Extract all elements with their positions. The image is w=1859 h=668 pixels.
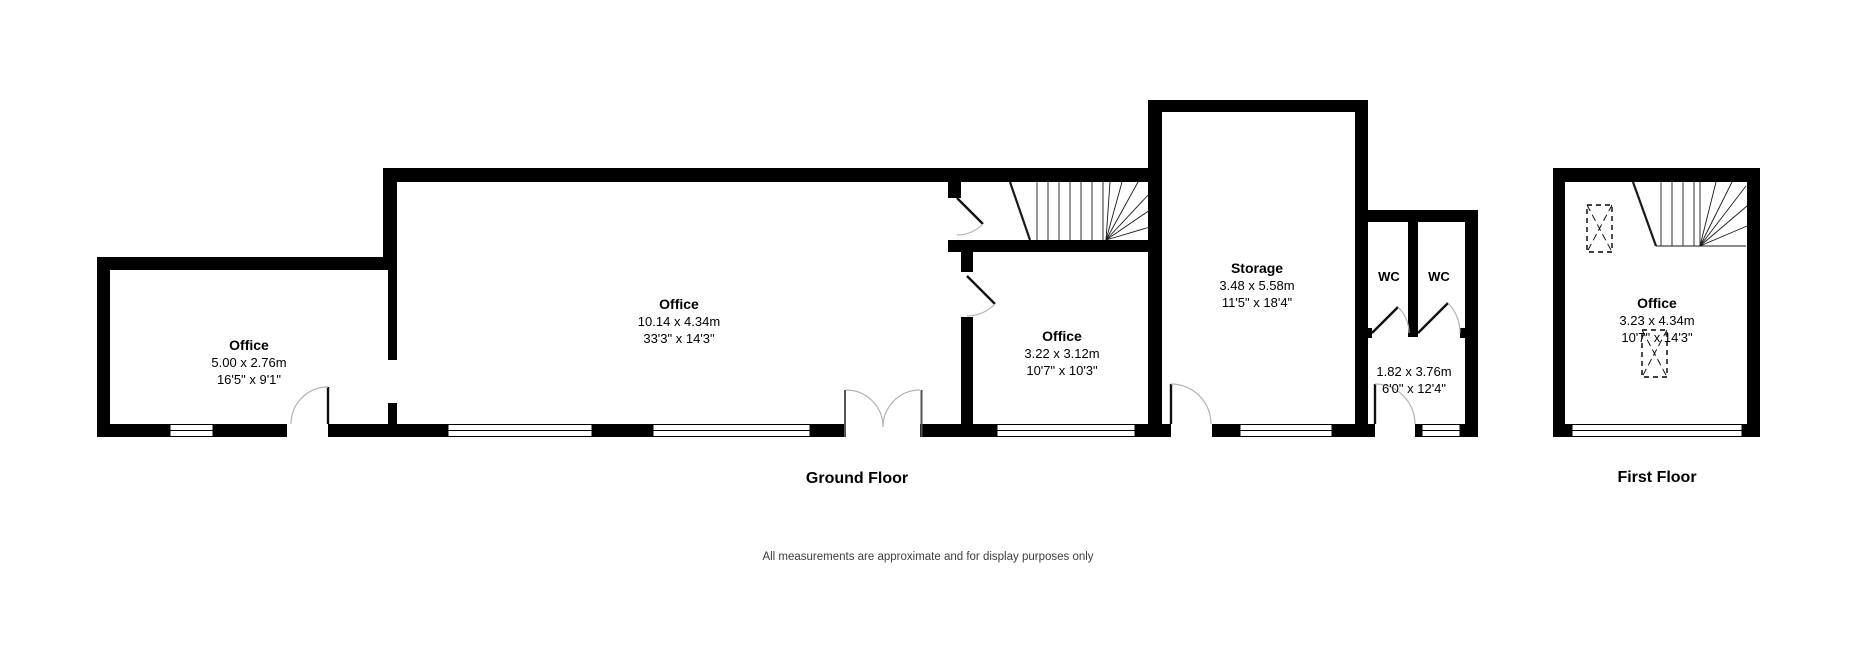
rooflight-symbols (1587, 205, 1667, 377)
wall (810, 424, 846, 437)
ground-floor-stairs (1010, 182, 1150, 240)
room-name: Office (1619, 295, 1694, 312)
room-dim-metric: 1.82 x 3.76m (1376, 363, 1451, 380)
room-label-storage: Storage 3.48 x 5.58m 11'5" x 18'4" (1219, 260, 1294, 311)
wall (1148, 100, 1162, 424)
door-leaf (967, 276, 995, 304)
wall (1332, 424, 1375, 437)
room-dim-imperial: 33'3" x 14'3" (638, 330, 720, 347)
room-name: Office (638, 296, 720, 313)
door-swing-arc (883, 390, 920, 427)
floorplan-drawing (0, 0, 1859, 668)
window-symbol (170, 425, 213, 437)
first-floor-window (1572, 425, 1742, 437)
wall (1747, 168, 1760, 437)
room-dim-imperial: 10'7" x 10'3" (1024, 362, 1099, 379)
window-symbol (1422, 425, 1460, 437)
first-floor-title: First Floor (1617, 469, 1696, 487)
stair-stringer (1633, 182, 1656, 246)
wall (961, 252, 973, 272)
wall (948, 182, 961, 198)
room-dim-metric: 3.23 x 4.34m (1619, 312, 1694, 329)
wall (1148, 100, 1368, 112)
wall (920, 424, 997, 437)
floorplan-page: Office 5.00 x 2.76m 16'5" x 9'1" Office … (0, 0, 1859, 668)
room-dim-imperial: 11'5" x 18'4" (1219, 294, 1294, 311)
wall (97, 424, 170, 437)
wall (961, 317, 973, 424)
stair-winders (1106, 182, 1150, 240)
room-name: Office (1024, 328, 1099, 345)
first-floor-stairs (1633, 182, 1747, 246)
wall (1460, 424, 1478, 437)
room-dim-metric: 3.48 x 5.58m (1219, 277, 1294, 294)
wall (1355, 100, 1368, 424)
room-name: Storage (1219, 260, 1294, 277)
wall (1465, 210, 1478, 424)
door-leaf (1418, 303, 1448, 333)
room-dim-metric: 5.00 x 2.76m (211, 354, 286, 371)
wall (97, 257, 397, 270)
wall (1742, 424, 1760, 437)
stair-winders (1700, 182, 1747, 246)
door-leaf (1372, 307, 1398, 333)
room-dim-imperial: 6'0" x 12'4" (1376, 380, 1451, 397)
door-swing-arc (1398, 307, 1409, 333)
room-label-lobby: 1.82 x 3.76m 6'0" x 12'4" (1376, 363, 1451, 397)
room-dim-metric: 3.22 x 3.12m (1024, 345, 1099, 362)
ground-floor-doors (291, 198, 1460, 437)
stair-treads (1661, 182, 1700, 246)
wall (948, 240, 1162, 252)
wall (1212, 424, 1240, 437)
rooflight-symbol (1587, 205, 1612, 252)
wall (97, 257, 110, 437)
door-swing-arc (957, 224, 983, 235)
wall (1553, 168, 1760, 182)
door-swing-arc (291, 387, 328, 424)
ground-floor-title: Ground Floor (806, 470, 908, 488)
window-symbol (997, 425, 1135, 437)
wall (328, 424, 448, 437)
room-name: Office (211, 337, 286, 354)
wall (388, 403, 397, 424)
window-symbol (448, 425, 592, 437)
room-label-office-first: Office 3.23 x 4.34m 10'7" x 14'3" (1619, 295, 1694, 346)
room-dim-metric: 10.14 x 4.34m (638, 313, 720, 330)
wall (1415, 424, 1422, 437)
wall (1362, 328, 1372, 338)
room-dim-imperial: 10'7" x 14'3" (1619, 329, 1694, 346)
room-label-office-main: Office 10.14 x 4.34m 33'3" x 14'3" (638, 296, 720, 347)
door-swing-arc (1171, 384, 1211, 424)
wall (592, 424, 653, 437)
wall (1355, 210, 1478, 222)
wall (383, 168, 1148, 182)
door-swing-arc (1448, 303, 1460, 333)
window-symbol (1572, 425, 1742, 437)
wall (1553, 168, 1565, 437)
stair-treads (1037, 182, 1103, 240)
room-label-office-left: Office 5.00 x 2.76m 16'5" x 9'1" (211, 337, 286, 388)
window-symbol (1240, 425, 1332, 437)
door-swing-arc (967, 304, 995, 316)
measurements-disclaimer: All measurements are approximate and for… (762, 551, 1093, 563)
wall (383, 168, 397, 270)
room-label-wc-left: WC (1378, 269, 1400, 284)
wall (1408, 222, 1418, 337)
door-swing-arc (846, 390, 883, 427)
wall (1553, 424, 1572, 437)
door-leaf (957, 198, 983, 224)
wall (388, 270, 397, 360)
wall (213, 424, 287, 437)
window-symbol (653, 425, 810, 437)
stair-stringer (1010, 182, 1030, 240)
wall (1135, 424, 1171, 437)
wall (1460, 328, 1478, 338)
room-label-office-small: Office 3.22 x 3.12m 10'7" x 10'3" (1024, 328, 1099, 379)
room-label-wc-right: WC (1428, 269, 1450, 284)
room-dim-imperial: 16'5" x 9'1" (211, 371, 286, 388)
